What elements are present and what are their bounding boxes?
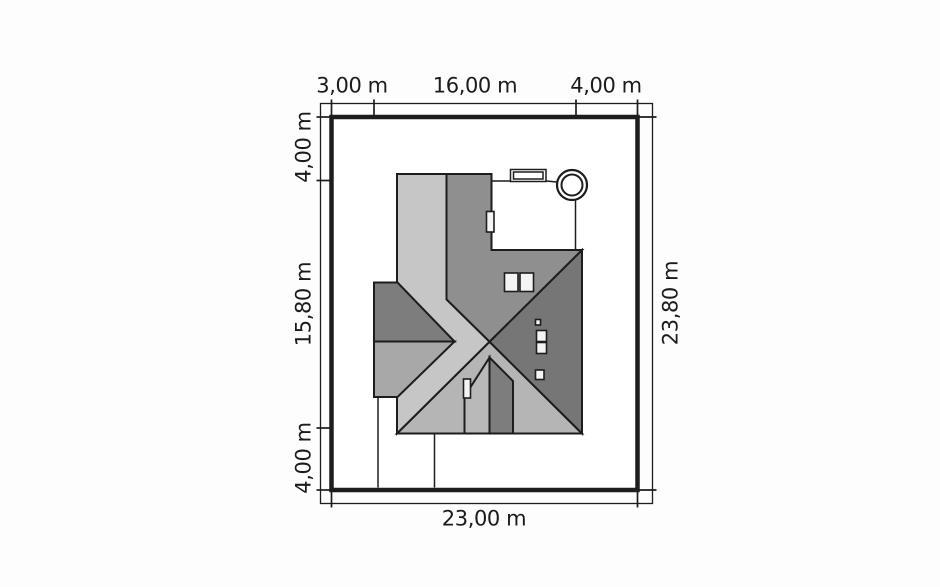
chimney-icon [464,379,471,398]
chimney-block-upper [537,331,547,342]
vent-block [536,370,545,380]
courtyard-edge-right [546,181,557,182]
dim-top-center: 16,00 m [433,76,517,97]
chimney-block-lower [537,343,547,354]
roof-window-left [505,273,519,292]
dim-right: 23,80 m [661,261,682,345]
garage-roof-hatch [487,212,495,233]
roof-window-right [520,273,534,292]
dim-top-left: 3,00 m [316,76,388,97]
dim-bottom: 23,00 m [442,509,526,530]
dim-left-upper: 4,00 m [294,111,315,183]
vent-small-icon [536,320,541,326]
dim-left-middle: 15,80 m [294,262,315,346]
site-plan: 3,00 m 16,00 m 4,00 m 4,00 m 15,80 m 4,0… [0,0,940,587]
dim-left-lower: 4,00 m [294,422,315,494]
dim-top-right: 4,00 m [570,76,642,97]
